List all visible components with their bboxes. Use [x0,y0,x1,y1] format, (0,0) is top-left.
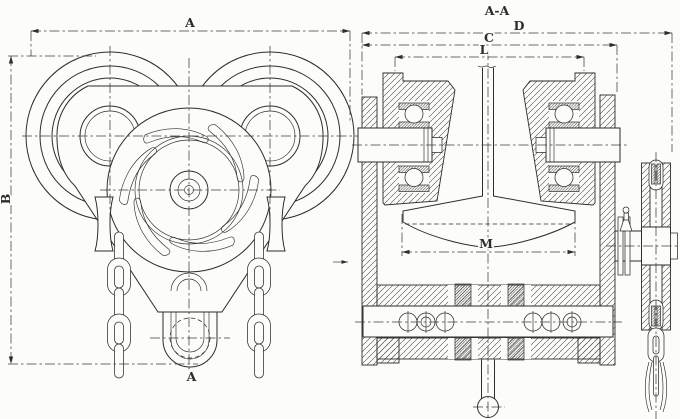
threaded-spacer [455,337,471,360]
bearing-ball [405,169,423,187]
threaded-spacer [455,284,471,307]
section-view: A-A [333,3,679,419]
spacer-band-upper [377,284,600,307]
dim-m-label: M [479,236,493,251]
bearing-ball [405,105,423,123]
chain-guide-left [95,197,113,251]
section-title: A-A [484,3,510,18]
spacer-band-lower [377,337,600,360]
dimension-m: M [402,214,575,256]
dim-l-label: L [480,42,489,57]
engineering-drawing: A B A A-A [0,0,680,419]
front-view: A B A [0,15,358,384]
section-cut-label: A [186,369,197,384]
dim-b-label: B [0,194,13,205]
suspension-clevis [163,312,217,367]
drawing-sheet: A B A A-A [0,0,680,419]
chain-guide-right [267,197,285,251]
threaded-spacer [508,337,524,360]
suspension-shaft [473,360,505,418]
dimension-l: L [395,42,584,71]
hand-chain-wheel [615,160,678,330]
dim-a-label: A [184,15,195,30]
bearing-ball [555,169,573,187]
threaded-spacer [508,284,524,307]
bearing-ball [555,105,573,123]
dim-d-label: D [514,18,525,33]
